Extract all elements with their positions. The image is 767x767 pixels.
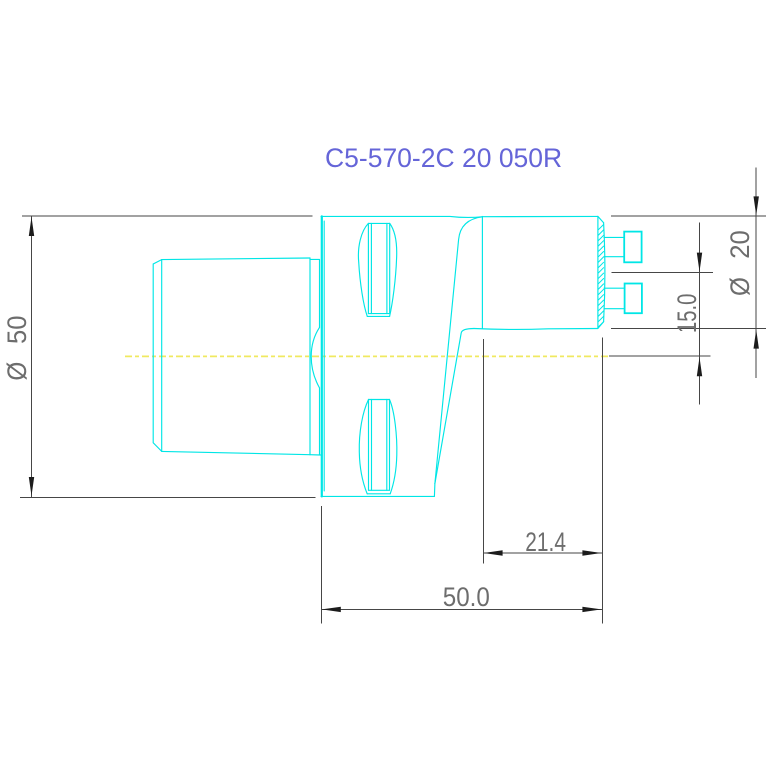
svg-text:21.4: 21.4 bbox=[525, 528, 566, 558]
svg-text:Ø: Ø bbox=[726, 277, 755, 296]
svg-text:50: 50 bbox=[1, 315, 32, 344]
svg-text:15.0: 15.0 bbox=[672, 294, 703, 333]
svg-text:20: 20 bbox=[724, 230, 755, 259]
svg-text:Ø: Ø bbox=[3, 362, 32, 381]
svg-text:C5-570-2C 20 050R: C5-570-2C 20 050R bbox=[325, 143, 562, 173]
svg-text:50.0: 50.0 bbox=[443, 583, 490, 613]
